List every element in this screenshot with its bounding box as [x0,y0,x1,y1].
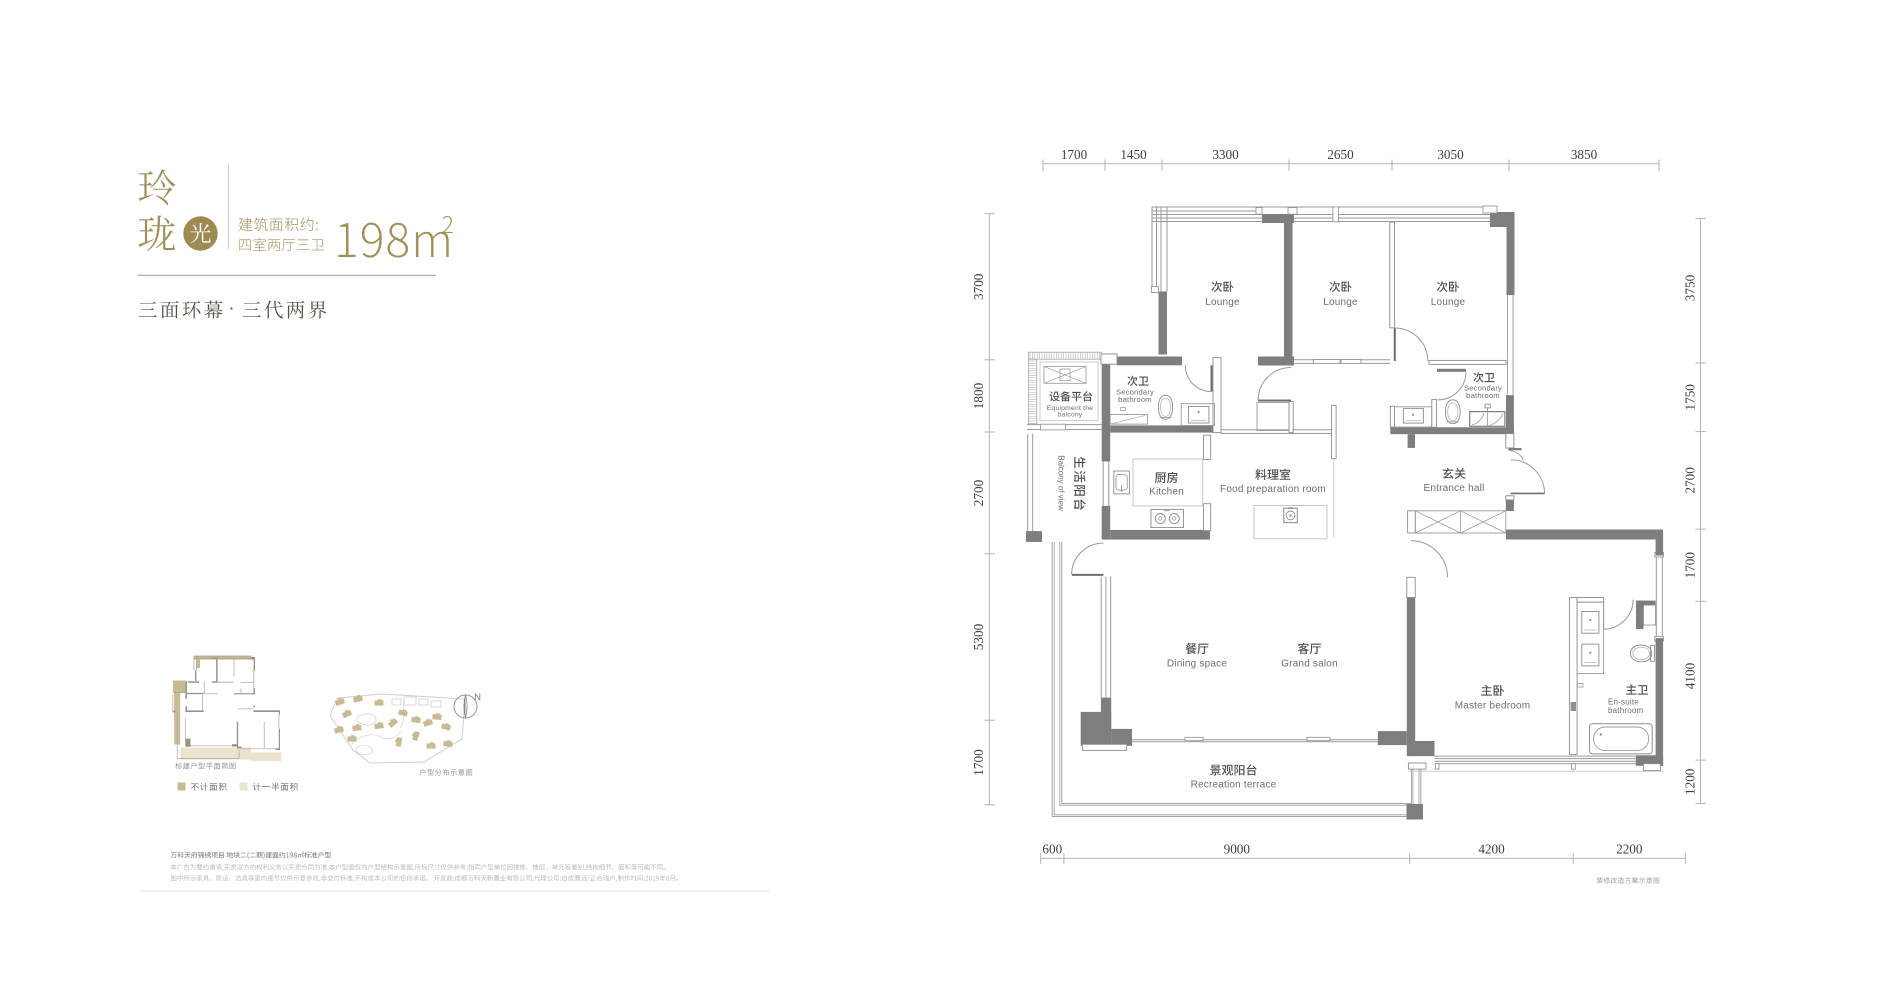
svg-text:Balcony of view: Balcony of view [1057,455,1066,511]
svg-text:Food preparation room: Food preparation room [1220,484,1326,495]
svg-text:bathroom: bathroom [1608,706,1644,715]
svg-text:9000: 9000 [1224,842,1251,857]
svg-text:Lounge: Lounge [1431,297,1466,308]
svg-text:2200: 2200 [1616,842,1643,857]
svg-text:1700: 1700 [971,749,986,776]
svg-text:bathroom: bathroom [1118,395,1152,404]
svg-text:1750: 1750 [1683,384,1698,411]
svg-text:1800: 1800 [971,382,986,409]
svg-text:2650: 2650 [1327,147,1354,162]
svg-text:3700: 3700 [971,273,986,300]
svg-text:Recreation terrace: Recreation terrace [1191,780,1277,791]
svg-text:600: 600 [1042,842,1062,857]
svg-text:3850: 3850 [1571,147,1598,162]
svg-text:5300: 5300 [971,623,986,650]
svg-text:balcony: balcony [1058,412,1083,419]
svg-text:4100: 4100 [1683,662,1698,689]
svg-text:4200: 4200 [1478,842,1505,857]
svg-text:3750: 3750 [1683,274,1698,301]
svg-text:2700: 2700 [971,479,986,506]
svg-text:Entrance hall: Entrance hall [1424,483,1485,494]
svg-text:bathroom: bathroom [1466,391,1500,400]
svg-text:Lounge: Lounge [1323,297,1358,308]
svg-text:Dining space: Dining space [1167,659,1227,670]
svg-text:1450: 1450 [1120,147,1147,162]
svg-text:1700: 1700 [1061,147,1088,162]
svg-text:1200: 1200 [1683,768,1698,795]
svg-text:Kitchen: Kitchen [1149,487,1184,498]
svg-text:Grand salon: Grand salon [1281,659,1338,670]
svg-text:3300: 3300 [1212,147,1239,162]
svg-text:Lounge: Lounge [1205,297,1240,308]
svg-text:3050: 3050 [1437,147,1464,162]
svg-text:2700: 2700 [1683,467,1698,494]
svg-text:1700: 1700 [1683,552,1698,579]
svg-text:N: N [474,692,481,703]
svg-text:Master bedroom: Master bedroom [1455,701,1531,712]
